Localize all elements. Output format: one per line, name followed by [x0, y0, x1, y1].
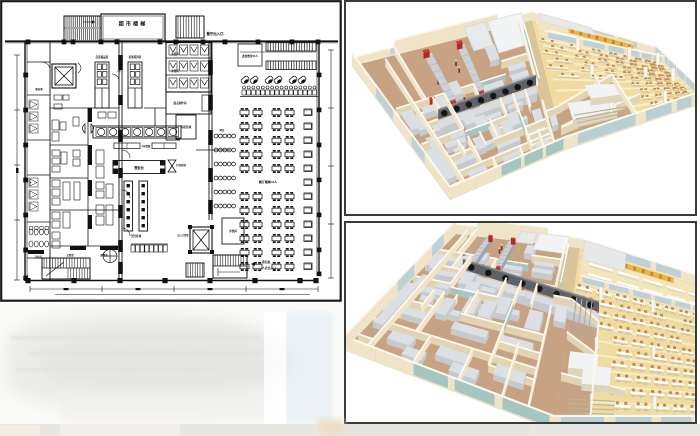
svg-text:超市楼梯: 超市楼梯	[118, 20, 148, 28]
svg-text:寄包处: 寄包处	[262, 260, 271, 264]
svg-text:人员出入口: 人员出入口	[261, 266, 276, 270]
svg-text:烹饪区域: 烹饪区域	[131, 234, 142, 238]
svg-text:餐厅出入口: 餐厅出入口	[206, 31, 225, 36]
svg-text:冷菜间: 冷菜间	[171, 52, 179, 56]
svg-text:主食库: 主食库	[66, 253, 74, 257]
svg-text:售饭台: 售饭台	[133, 165, 144, 170]
svg-text:副食库: 副食库	[100, 253, 108, 257]
svg-text:冷饮间: 冷饮间	[229, 229, 237, 233]
svg-text:自选商品区: 自选商品区	[96, 55, 109, 59]
svg-text:卫生间: 卫生间	[34, 255, 42, 259]
svg-text:专柜区域: 专柜区域	[181, 125, 192, 129]
svg-text:此处餐位64人: 此处餐位64人	[242, 54, 258, 58]
svg-text:餐厅餐椅44人: 餐厅餐椅44人	[258, 179, 278, 184]
svg-text:冷荤间: 冷荤间	[171, 69, 179, 73]
svg-text:打包区域: 打包区域	[176, 163, 186, 167]
svg-text:4米货架: 4米货架	[142, 144, 151, 148]
svg-text:更衣室: 更衣室	[35, 87, 43, 91]
svg-text:面点制作间: 面点制作间	[174, 101, 187, 105]
svg-text:货架陈列区: 货架陈列区	[128, 55, 142, 59]
svg-text:吧台: 吧台	[220, 128, 225, 132]
